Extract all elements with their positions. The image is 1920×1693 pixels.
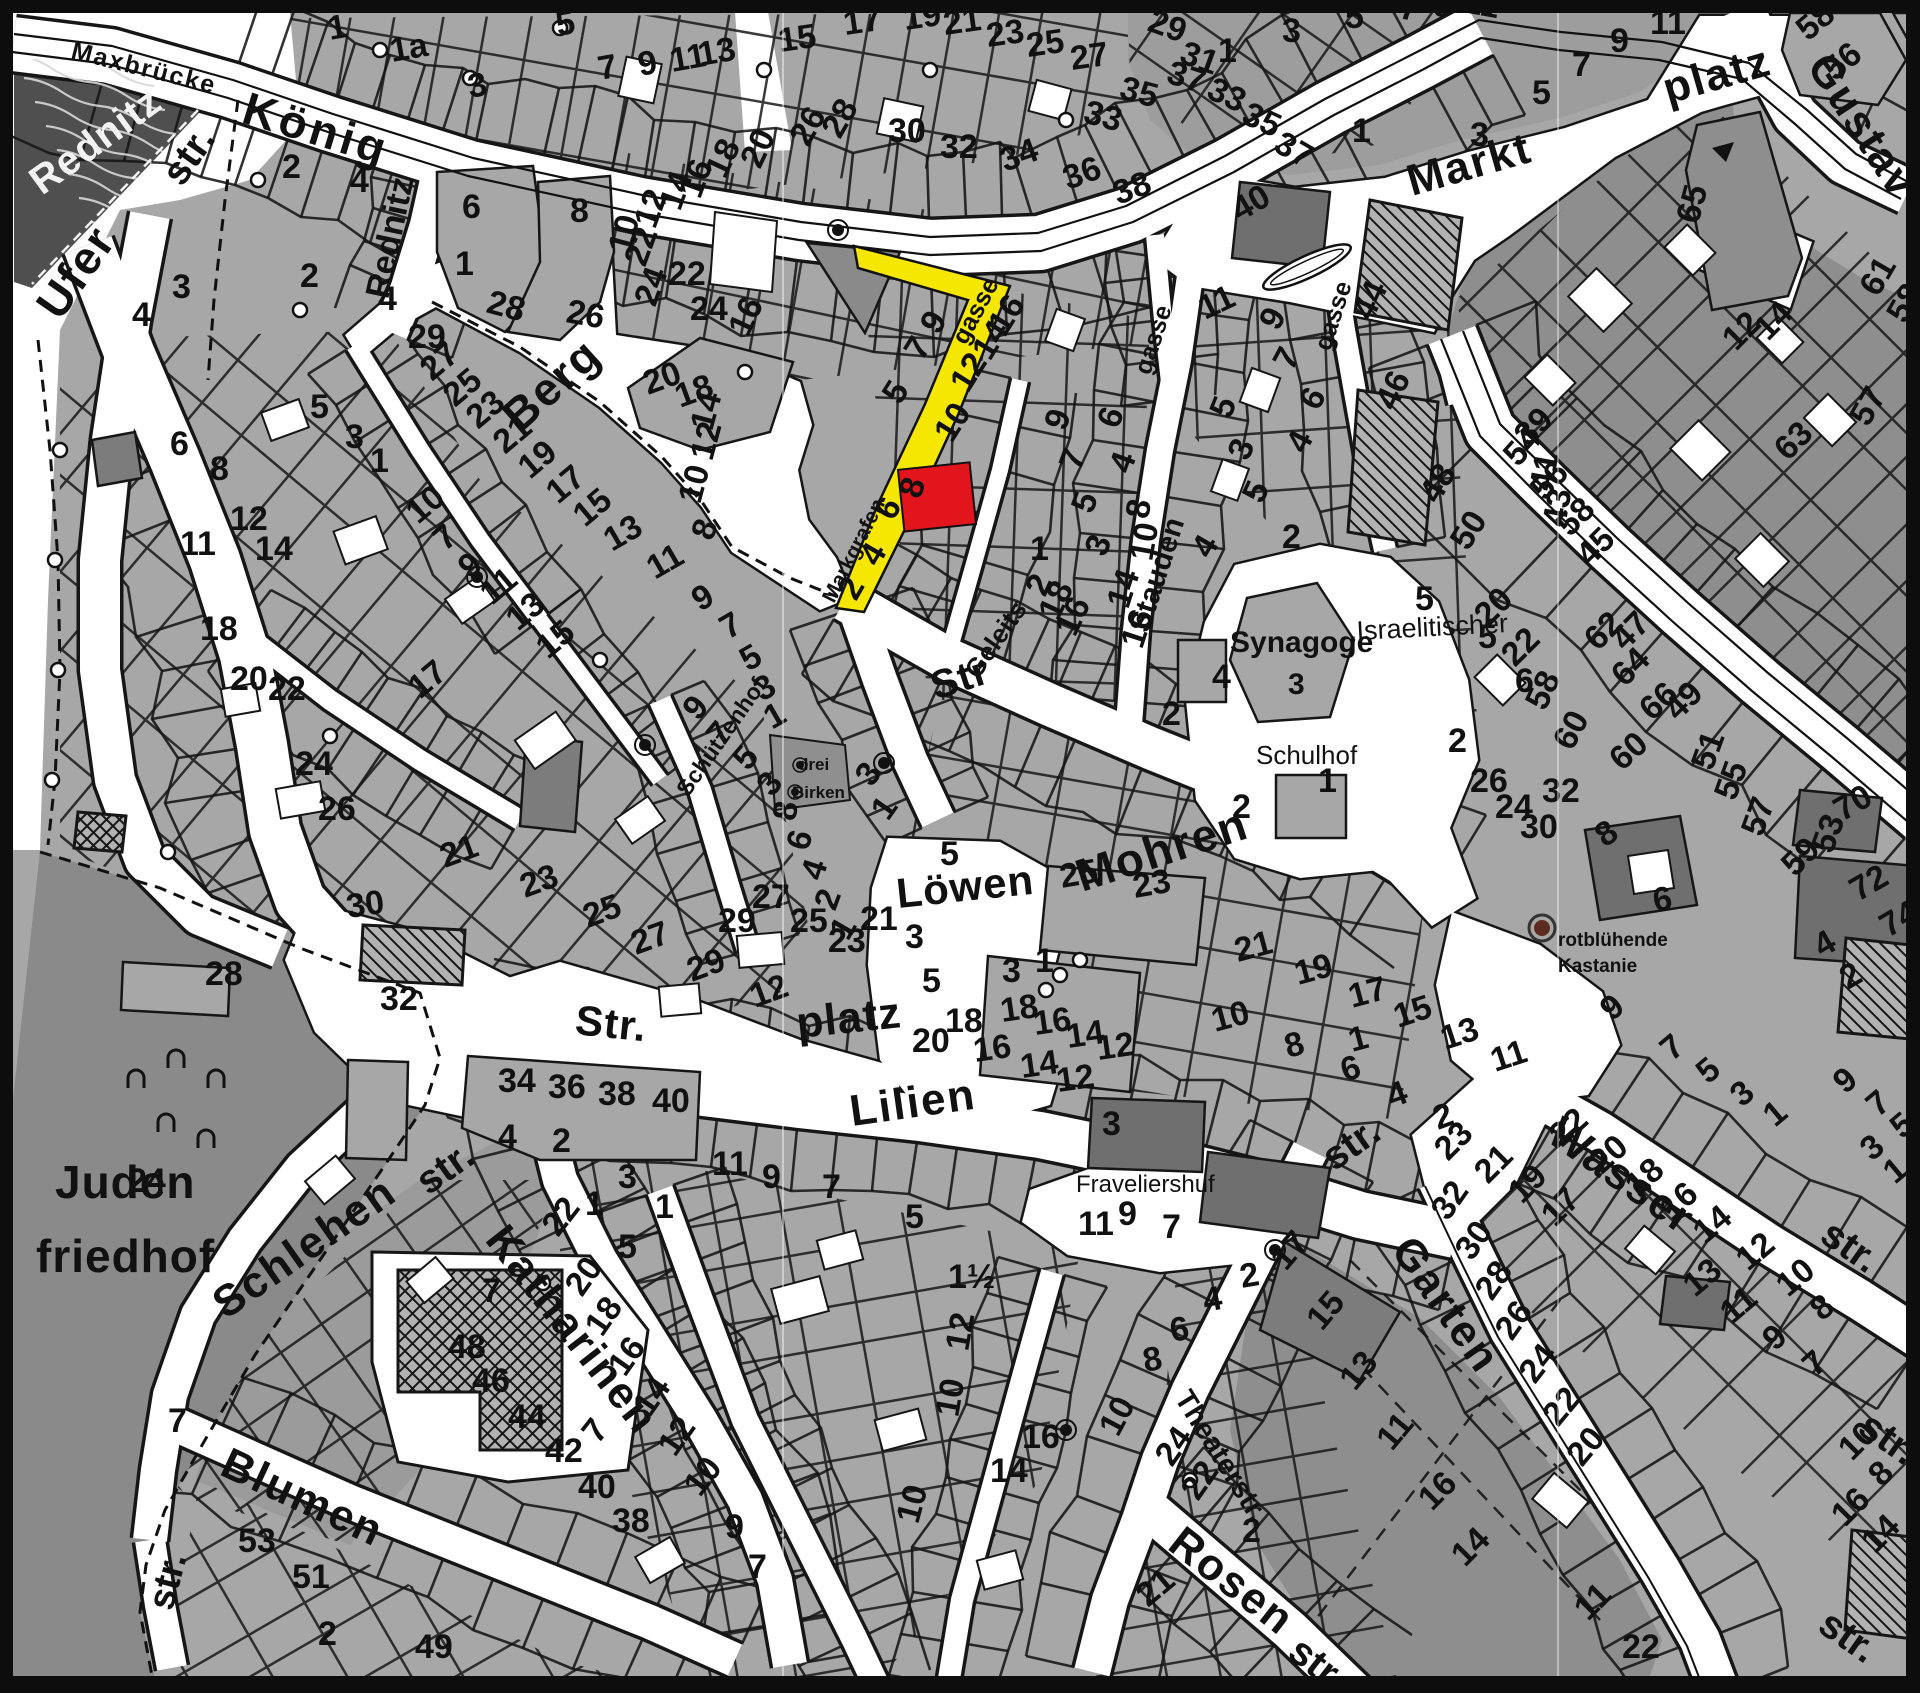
svg-text:2: 2	[1232, 788, 1251, 826]
svg-text:32: 32	[940, 128, 978, 166]
svg-text:8: 8	[210, 450, 229, 488]
svg-text:9: 9	[1610, 22, 1629, 60]
svg-text:28: 28	[205, 955, 243, 993]
svg-text:2: 2	[552, 1122, 571, 1160]
svg-text:36: 36	[548, 1068, 586, 1106]
svg-text:4: 4	[498, 1118, 517, 1156]
svg-text:3: 3	[1002, 952, 1021, 990]
svg-text:22: 22	[1622, 1628, 1660, 1666]
svg-text:Fraveliershuf: Fraveliershuf	[1076, 1171, 1215, 1198]
svg-text:5: 5	[922, 962, 941, 1000]
svg-text:4: 4	[132, 296, 151, 334]
svg-text:3: 3	[1470, 116, 1489, 154]
svg-text:2: 2	[1448, 722, 1467, 760]
svg-text:2: 2	[282, 148, 301, 186]
svg-text:30: 30	[344, 883, 387, 926]
svg-text:3: 3	[618, 1158, 637, 1196]
svg-text:24: 24	[128, 1162, 166, 1200]
svg-text:12: 12	[938, 1310, 982, 1354]
svg-text:44: 44	[508, 1398, 546, 1436]
svg-text:16: 16	[971, 1027, 1014, 1070]
svg-text:26: 26	[564, 292, 608, 336]
svg-text:27: 27	[1068, 35, 1111, 78]
svg-text:1: 1	[1318, 762, 1337, 800]
svg-text:53: 53	[238, 1522, 276, 1560]
svg-text:42: 42	[545, 1432, 583, 1470]
svg-text:3: 3	[345, 418, 364, 456]
svg-text:friedhof: friedhof	[36, 1230, 215, 1282]
svg-text:2: 2	[1162, 695, 1181, 733]
svg-text:1: 1	[1218, 32, 1237, 70]
svg-text:1: 1	[1035, 942, 1054, 980]
svg-text:3: 3	[172, 268, 191, 306]
svg-text:Birken: Birken	[792, 783, 845, 802]
svg-text:11: 11	[712, 1145, 748, 1183]
svg-text:30: 30	[888, 112, 926, 150]
svg-text:14: 14	[255, 530, 293, 568]
svg-text:20: 20	[230, 660, 268, 698]
svg-text:1: 1	[1030, 530, 1049, 568]
svg-text:20: 20	[912, 1022, 950, 1060]
svg-text:24: 24	[295, 745, 333, 783]
svg-text:40: 40	[578, 1468, 616, 1506]
svg-text:48: 48	[448, 1328, 486, 1366]
svg-text:23: 23	[1130, 862, 1174, 906]
svg-text:14: 14	[990, 1452, 1028, 1490]
svg-text:49: 49	[415, 1628, 453, 1666]
svg-text:18: 18	[200, 610, 238, 648]
svg-text:1½: 1½	[948, 1258, 995, 1296]
svg-text:7: 7	[1572, 46, 1591, 84]
svg-text:38: 38	[598, 1075, 636, 1113]
svg-text:6: 6	[170, 425, 189, 463]
svg-text:26: 26	[1470, 762, 1508, 800]
svg-text:1a: 1a	[387, 26, 432, 70]
svg-text:3: 3	[1288, 668, 1305, 701]
svg-text:9: 9	[762, 1158, 781, 1196]
svg-text:5: 5	[1415, 580, 1434, 618]
svg-text:38: 38	[612, 1502, 650, 1540]
svg-text:32: 32	[380, 980, 418, 1018]
svg-text:3: 3	[905, 918, 924, 956]
svg-text:5: 5	[618, 1228, 637, 1266]
svg-text:1: 1	[585, 1185, 604, 1223]
svg-text:23: 23	[984, 12, 1027, 55]
svg-text:Synagoge: Synagoge	[1230, 626, 1373, 659]
svg-text:12: 12	[1054, 1057, 1097, 1100]
svg-text:9: 9	[1118, 1195, 1137, 1233]
svg-text:26: 26	[318, 790, 356, 828]
svg-text:Str.: Str.	[573, 996, 649, 1050]
svg-text:2: 2	[300, 257, 319, 295]
svg-text:8: 8	[570, 192, 589, 230]
svg-text:34: 34	[498, 1062, 536, 1100]
svg-text:5: 5	[310, 388, 329, 426]
svg-text:22: 22	[668, 255, 706, 293]
svg-text:10: 10	[1122, 520, 1166, 564]
svg-text:4: 4	[1212, 658, 1231, 696]
svg-text:7: 7	[1162, 1208, 1181, 1246]
svg-text:5: 5	[1532, 74, 1551, 112]
svg-text:1: 1	[455, 245, 474, 283]
svg-text:22: 22	[268, 670, 306, 708]
svg-text:11: 11	[1078, 1205, 1114, 1243]
svg-text:Juden: Juden	[55, 1156, 195, 1208]
svg-text:rotblühende: rotblühende	[1558, 930, 1668, 951]
svg-text:25: 25	[1024, 22, 1067, 65]
svg-text:7: 7	[482, 1272, 501, 1310]
svg-text:4: 4	[350, 162, 369, 200]
svg-text:1: 1	[655, 1188, 674, 1226]
svg-text:4: 4	[378, 280, 397, 318]
svg-text:2: 2	[318, 1615, 337, 1653]
svg-text:7: 7	[168, 1402, 187, 1440]
svg-text:7: 7	[822, 1168, 841, 1206]
svg-text:1: 1	[370, 442, 389, 480]
svg-text:46: 46	[472, 1362, 510, 1400]
svg-text:drei: drei	[798, 755, 829, 774]
svg-text:16: 16	[1022, 1418, 1060, 1456]
svg-text:40: 40	[652, 1082, 690, 1120]
svg-text:27: 27	[752, 878, 790, 916]
svg-text:9: 9	[725, 1508, 744, 1546]
svg-text:11: 11	[180, 525, 216, 563]
svg-text:3: 3	[1282, 12, 1301, 50]
svg-text:13: 13	[695, 30, 739, 74]
svg-text:5: 5	[940, 835, 959, 873]
svg-text:32: 32	[1542, 772, 1580, 810]
svg-text:7: 7	[748, 1548, 767, 1586]
svg-text:6: 6	[462, 188, 481, 226]
svg-text:2: 2	[1242, 1512, 1261, 1550]
svg-text:25: 25	[1057, 852, 1101, 896]
svg-text:2: 2	[1282, 518, 1301, 556]
svg-text:3: 3	[1102, 1105, 1121, 1143]
svg-text:5: 5	[905, 1198, 924, 1236]
svg-text:Schulhof: Schulhof	[1256, 740, 1358, 770]
svg-text:51: 51	[292, 1558, 330, 1596]
svg-text:Kastanie: Kastanie	[1558, 956, 1637, 977]
svg-text:12: 12	[1094, 1025, 1137, 1068]
svg-text:29: 29	[718, 902, 756, 940]
svg-text:1: 1	[1352, 112, 1371, 150]
svg-text:10: 10	[928, 1376, 972, 1420]
